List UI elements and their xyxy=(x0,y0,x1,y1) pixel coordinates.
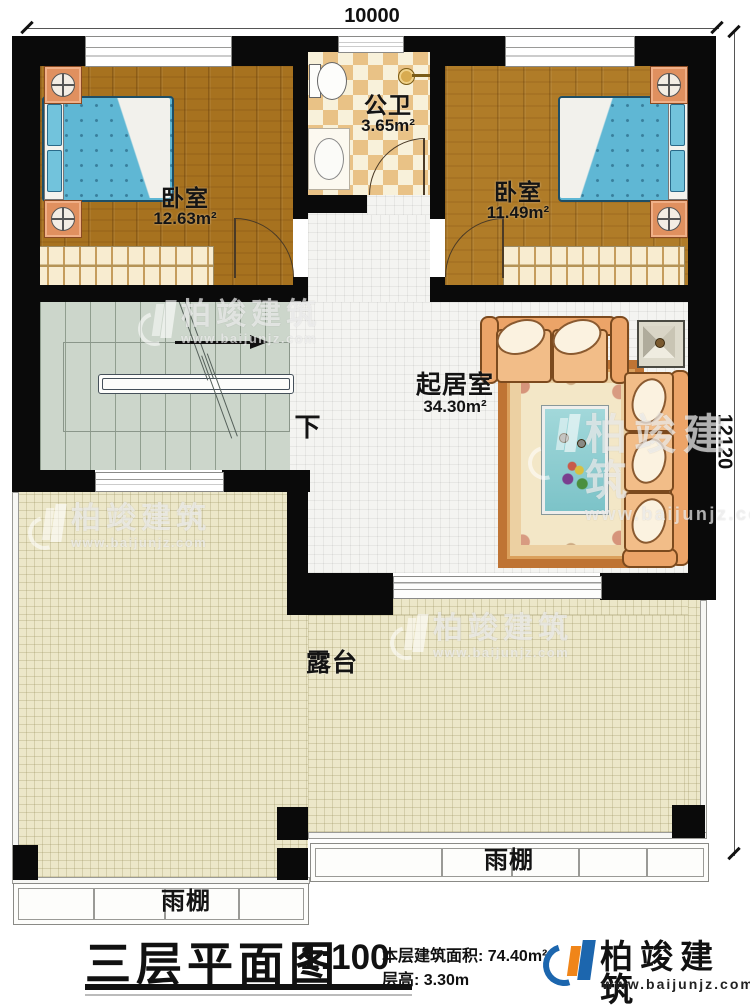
dimension-label-top: 10000 xyxy=(322,5,422,28)
room-label-bedroom-right: 卧室 11.49m² xyxy=(453,180,583,222)
lamp-icon xyxy=(657,207,681,231)
room-label-bedroom-left: 卧室 12.63m² xyxy=(120,186,250,228)
bed-cushion xyxy=(670,150,685,192)
window xyxy=(95,472,224,492)
corner-table-knob xyxy=(655,338,665,348)
room-area: 3.65m² xyxy=(361,117,415,135)
wall-segment xyxy=(308,195,367,213)
bed-cushion xyxy=(670,104,685,146)
wall-post xyxy=(277,848,308,880)
terrace-parapet xyxy=(12,492,19,880)
sofa-three-seat xyxy=(624,370,686,562)
wall-segment xyxy=(430,277,445,285)
bed-cushion xyxy=(47,104,62,146)
wall-post xyxy=(277,807,308,840)
cup-icon xyxy=(559,433,569,443)
company-website: www.baijunjz.com xyxy=(602,976,750,992)
canopy-name: 雨棚 xyxy=(484,848,534,873)
terrace-floor xyxy=(393,598,688,615)
floor-area-label: 本层建筑面积: 74.40m² xyxy=(382,942,547,966)
bed-blanket xyxy=(62,98,170,198)
flower-decor xyxy=(557,455,593,495)
wall-segment xyxy=(12,285,308,302)
canopy-right: 雨棚 xyxy=(310,843,709,882)
lamp-icon xyxy=(51,207,75,231)
wall-segment xyxy=(430,213,445,219)
hallway-floor xyxy=(308,213,430,305)
wall-segment xyxy=(600,573,688,600)
shower-arm xyxy=(412,74,430,77)
door-leaf xyxy=(423,138,425,195)
coffee-table xyxy=(542,406,608,514)
wardrobe xyxy=(503,246,685,286)
window xyxy=(338,36,404,53)
door-leaf xyxy=(502,218,504,278)
nightstand xyxy=(44,200,82,238)
room-name: 起居室 xyxy=(416,372,494,398)
cup-icon xyxy=(577,439,586,448)
scale-label: 1:100 xyxy=(300,938,390,978)
room-area: 34.30m² xyxy=(423,398,486,416)
sink-icon xyxy=(314,138,344,180)
terrace-floor xyxy=(18,615,308,877)
wall-post xyxy=(13,845,38,880)
terrace-parapet xyxy=(308,832,707,839)
title-underline xyxy=(85,984,412,990)
room-label-terrace: 露台 xyxy=(280,650,384,676)
floor-height-label: 层高: 3.30m xyxy=(382,966,469,990)
canopy-label: 雨棚 xyxy=(140,889,232,914)
room-label-bathroom: 公卫 3.65m² xyxy=(328,93,448,135)
company-name: 柏竣建筑 xyxy=(600,940,750,1006)
nightstand xyxy=(650,200,688,238)
window xyxy=(85,36,232,67)
wall-post xyxy=(672,805,705,838)
wall-segment xyxy=(287,573,393,615)
canopy-divider xyxy=(646,849,648,876)
lamp-icon xyxy=(51,73,75,97)
wall-segment xyxy=(12,36,40,492)
dimension-line-top xyxy=(25,28,719,29)
terrace-floor xyxy=(308,615,688,832)
canopy-label: 雨棚 xyxy=(451,848,567,873)
dimension-label-right: 12120 xyxy=(713,402,736,482)
wall-segment xyxy=(444,36,505,66)
company-logo-icon xyxy=(543,938,595,990)
room-name: 卧室 xyxy=(494,180,542,204)
wall-segment xyxy=(293,277,308,285)
wall-segment xyxy=(293,213,308,219)
stair-direction-arrow xyxy=(175,341,255,344)
room-name: 公卫 xyxy=(364,93,412,117)
lamp-icon xyxy=(657,73,681,97)
sliding-door xyxy=(393,576,602,599)
wardrobe xyxy=(32,246,214,286)
wall-segment xyxy=(293,36,308,213)
room-area: 12.63m² xyxy=(153,210,216,228)
canopy-divider xyxy=(93,889,95,919)
direction-text: 下 xyxy=(294,414,321,441)
terrace-parapet xyxy=(700,600,707,836)
title-underline-thin xyxy=(85,994,412,996)
window xyxy=(505,36,635,67)
bed-cushion xyxy=(47,150,62,192)
wall-segment xyxy=(688,36,716,600)
terrace-floor xyxy=(18,492,287,615)
stair-handrail xyxy=(98,374,294,394)
room-name: 露台 xyxy=(306,650,358,676)
canopy-left: 雨棚 xyxy=(13,883,309,925)
room-name: 卧室 xyxy=(161,186,209,210)
wall-segment xyxy=(12,470,95,492)
floor-plan-canvas: 卧室 12.63m² 公卫 3.65m² 卧室 11.49m² 起居室 34.3… xyxy=(0,0,750,1007)
canopy-divider xyxy=(238,889,240,919)
nightstand xyxy=(44,66,82,104)
wall-segment xyxy=(430,285,688,302)
stair-arrowhead-icon xyxy=(250,335,268,349)
canopy-divider xyxy=(578,849,580,876)
canopy-divider xyxy=(441,849,443,876)
wall-segment xyxy=(230,36,293,66)
stairs-direction-label: 下 xyxy=(288,414,328,441)
nightstand xyxy=(650,66,688,104)
room-label-living: 起居室 34.30m² xyxy=(392,372,518,416)
bathroom-door-threshold xyxy=(367,195,430,215)
room-area: 11.49m² xyxy=(487,204,549,222)
corner-table xyxy=(637,320,685,368)
canopy-name: 雨棚 xyxy=(161,889,211,914)
